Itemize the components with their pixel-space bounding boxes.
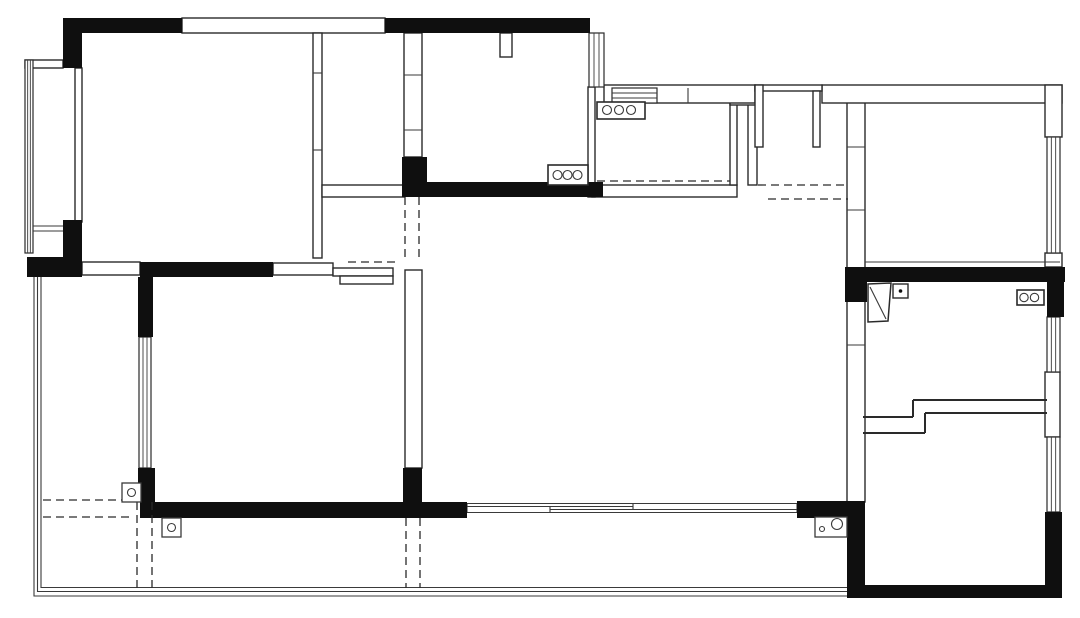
partition-wall-segment <box>82 262 140 275</box>
burner-circle-icon <box>573 171 582 180</box>
structural-wall-segment <box>845 282 867 302</box>
window <box>589 33 604 87</box>
partition-wall-segment <box>755 85 763 147</box>
partition-wall-segment <box>1045 253 1062 267</box>
structural-wall-segment <box>847 502 865 598</box>
partition-wall-segment <box>75 68 82 222</box>
partition-wall-segment <box>182 18 385 33</box>
drain-unit-circle-icon <box>820 527 825 532</box>
partition-wall-segment <box>588 87 595 197</box>
terrace-boundary-line <box>34 277 848 596</box>
structural-wall-segment <box>140 502 467 518</box>
partition-wall-segment <box>592 185 737 197</box>
floor-plan-drawing <box>0 0 1080 618</box>
burner-circle-icon <box>615 106 624 115</box>
structural-walls <box>27 18 1065 598</box>
partition-wall-segment <box>333 268 393 276</box>
partition-wall-segment <box>813 91 820 147</box>
window <box>1047 437 1060 512</box>
drain-circle-icon <box>128 489 136 497</box>
partition-wall-segment <box>1045 372 1060 437</box>
partition-wall-segment <box>730 103 737 185</box>
burner-circle-icon <box>563 171 572 180</box>
fixtures <box>122 102 1044 537</box>
partition-wall-segment <box>313 33 322 258</box>
structural-wall-segment <box>1045 512 1062 598</box>
partition-wall-segment <box>755 85 822 91</box>
structural-wall-segment <box>63 220 82 257</box>
sink-circle-icon <box>1030 293 1038 301</box>
terrace-outline <box>34 277 848 596</box>
floor-plan-page <box>0 0 1080 618</box>
partition-wall-segment <box>822 85 1062 103</box>
window <box>1047 317 1060 372</box>
structural-wall-segment <box>63 18 82 68</box>
burner-circle-icon <box>603 106 612 115</box>
partition-walls <box>25 18 1062 502</box>
window <box>1047 137 1060 253</box>
burner-circle-icon <box>553 171 562 180</box>
structural-wall-segment <box>140 262 273 277</box>
terrace-boundary-line <box>41 277 848 588</box>
window <box>139 337 151 468</box>
structural-wall-segment <box>1047 282 1064 317</box>
structural-wall-segment <box>138 277 153 337</box>
partition-wall-segment <box>405 270 422 468</box>
partition-wall-segment <box>500 33 512 57</box>
partition-wall-segment <box>322 185 404 197</box>
sink-circle-icon <box>1020 293 1028 301</box>
partition-wall-segment <box>340 276 393 284</box>
meter-dot-icon <box>899 289 903 293</box>
burner-circle-icon <box>627 106 636 115</box>
partition-wall-segment <box>273 263 333 275</box>
structural-wall-segment <box>385 18 590 33</box>
structural-wall-segment <box>845 267 1065 282</box>
window <box>25 60 33 253</box>
drain-unit-circle-icon <box>832 519 843 530</box>
drain-circle-icon <box>168 524 176 532</box>
window <box>612 88 657 103</box>
partition-wall-segment <box>1045 85 1062 137</box>
structural-wall-segment <box>27 257 82 277</box>
terrace-boundary-line <box>38 277 849 592</box>
structural-wall-segment <box>847 585 1062 598</box>
structural-wall-segment <box>403 468 422 502</box>
partition-wall-segment <box>404 33 422 157</box>
